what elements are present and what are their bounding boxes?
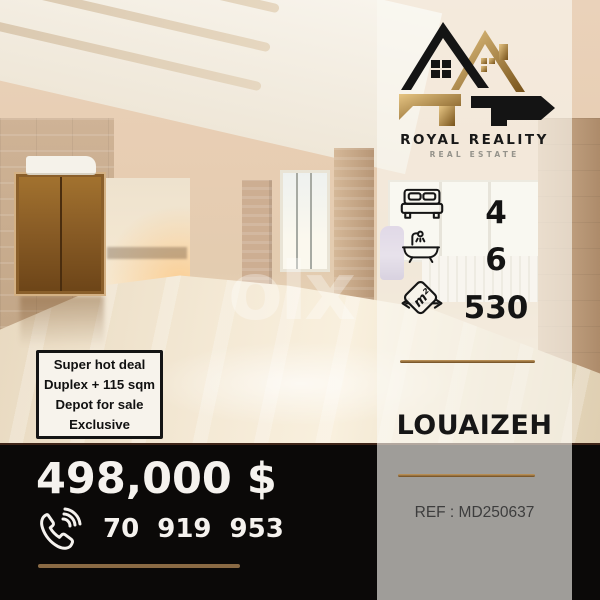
stat-area: m² 530 [377,278,572,328]
ac-unit [26,156,96,175]
door-reflection [20,296,104,346]
highlight-line: Depot for sale [56,397,144,412]
real-estate-ad: olx 498,000 $ 70 919 953 Super hot deal … [0,0,600,600]
reference-number: REF : MD250637 [377,502,572,524]
bathrooms-count: 6 [457,244,535,276]
info-sidebar: ROYAL REALITY REAL ESTATE 4 [377,0,572,600]
phone-icon [33,505,85,557]
highlight-line: Duplex + 115 sqm [44,377,155,392]
door-split [60,177,62,291]
gold-divider-bottom [38,564,240,568]
hallway-opening [104,178,190,292]
stat-bathrooms: 6 [377,230,572,278]
bedrooms-count: 4 [457,197,535,229]
area-icon: m² [399,278,445,320]
olx-watermark-icon: olx [228,252,353,332]
ceiling-groove [0,0,280,13]
ceiling-groove [0,13,262,92]
highlight-box: Super hot deal Duplex + 115 sqm Depot fo… [36,350,163,439]
hallway-shadow [107,247,187,259]
wooden-door [16,174,104,294]
location: LOUAIZEH [377,409,572,443]
bathtub-icon [399,230,443,266]
phone-number: 70 919 953 [103,514,284,544]
agency-tagline: REAL ESTATE [377,150,572,159]
agency-logo-icon [395,8,555,126]
price: 498,000 $ [36,454,277,504]
bed-icon [399,188,445,221]
highlight-line: Exclusive [69,417,130,432]
area-value: 530 [457,292,535,324]
highlight-line: Super hot deal [54,357,146,372]
gold-divider-ref [398,474,535,477]
agency-logo: ROYAL REALITY REAL ESTATE [377,8,572,159]
stat-bedrooms: 4 [377,188,572,232]
gold-divider-top [400,360,535,363]
agency-name: ROYAL REALITY [377,132,572,148]
ceiling-groove [0,0,271,52]
